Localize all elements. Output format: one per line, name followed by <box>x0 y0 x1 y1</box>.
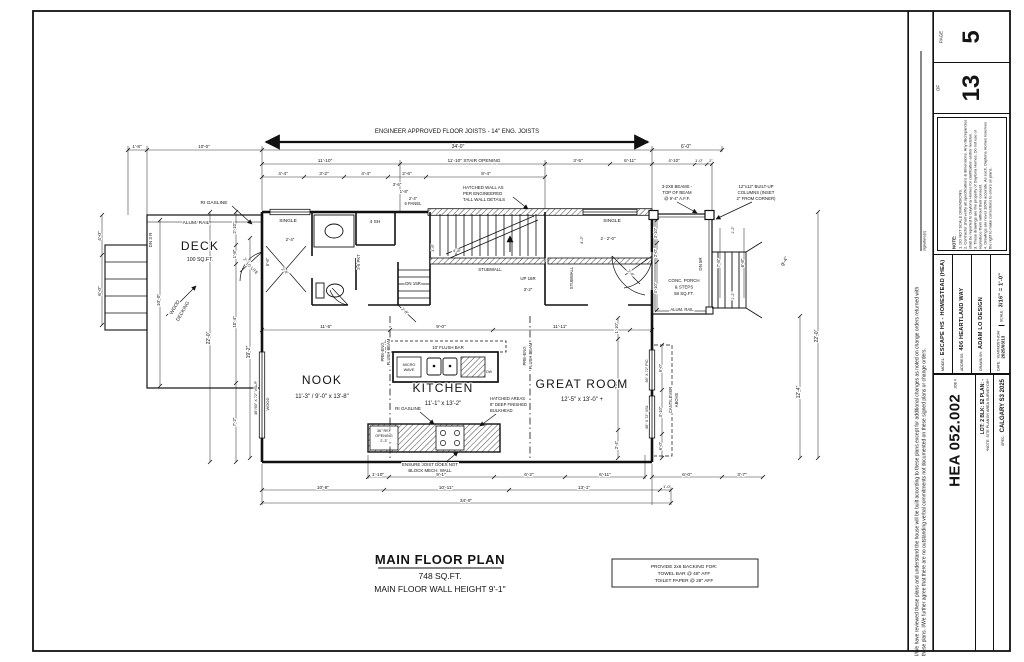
dim-label: 1'-0" <box>695 158 704 163</box>
disclaimer-strip: I/We have reviewed these plans and under… <box>908 11 933 651</box>
dim-label: 9'-4" <box>780 256 790 268</box>
ri-gasline-label: RI GASLINE <box>395 406 421 411</box>
date-label: DATE: <box>997 361 1001 371</box>
window-label: 36"/60" X 72" VSL/F <box>254 380 258 415</box>
dim-label: FLUSH BEAM <box>528 342 533 369</box>
dim-label: 11'-5" <box>320 324 332 330</box>
dim-label: 2'-0" <box>653 248 658 257</box>
leader-arrows <box>166 197 752 462</box>
bathroom-fixtures <box>314 215 354 298</box>
room-label-nook: NOOK <box>302 373 342 387</box>
dim-label: DW <box>486 370 493 374</box>
dim-label: 3'-6" <box>393 182 402 187</box>
dim-label: 11'-10" <box>318 158 333 164</box>
dim-label: 1'-8" <box>400 189 409 194</box>
job-info-group: HEA 052.002 JOB # LOT: 2 BLK: 52 PLAN: -… <box>934 375 1010 651</box>
stubwall <box>548 258 652 264</box>
dim-label: 9'-1" <box>436 472 446 478</box>
dim-label: 6'-0" <box>658 363 663 372</box>
dim-label: 6'-0" <box>97 286 103 296</box>
dim-label: TOP OF BEAM <box>662 190 692 195</box>
dim-label: 6'-11" <box>599 472 611 478</box>
notes-cell: NOTE: 1. DO NOT SCALE DIMENSIONS. 2. Con… <box>934 114 1010 255</box>
window-label: 36" X 72" VSL <box>645 405 649 429</box>
dim-label: 1/2 LITE <box>245 261 259 275</box>
note-item: 2. Contractor shall verify all specifica… <box>962 119 972 249</box>
window-label: SINGLE <box>603 218 621 224</box>
address-label: ADDRESS: <box>960 353 964 371</box>
dim-label: 3'-7" <box>737 472 747 478</box>
dim-label: PRE-ENG <box>380 342 385 361</box>
dim-label: 34'-0" <box>452 144 465 150</box>
beam-note: 3-2X8 BEAMS - <box>662 184 693 189</box>
title-block: PAGE 5 OF 13 NOTE: 1. DO NOT SCALE DIMEN… <box>933 11 1010 651</box>
dim-label: 7'-8" <box>716 258 721 267</box>
drawn-by-label: DRAWN BY: <box>979 351 983 371</box>
door-label: 2-6 PKT <box>356 254 361 270</box>
dim-label: 10'-8" <box>317 485 330 491</box>
dim-label: ALUM. RAIL <box>183 220 210 226</box>
signature-block: signature(s) <box>916 51 927 251</box>
dim-label: 10'-11" <box>439 485 454 491</box>
dim-label: 6'-0" <box>682 472 692 478</box>
dim-label: 4 SH <box>370 219 381 225</box>
joist-warning: ENSURE JOIST DOES NOT <box>402 462 458 467</box>
window-label: 36" X 72" PIC <box>645 359 649 382</box>
note-item: 3. These drawings are the property of Da… <box>972 119 982 249</box>
lot-line: LOT: 2 BLK: 52 PLAN: - <box>980 379 986 647</box>
dim-label: 58 SQ.FT. <box>674 291 694 296</box>
page-number-cell: PAGE 5 <box>934 11 1010 63</box>
plan-title: MAIN FLOOR PLAN <box>375 552 505 567</box>
dim-label: 1'-8" <box>232 249 237 258</box>
ri-gasline-label: RI GASLINE <box>201 200 228 206</box>
model-label: MODEL: <box>941 357 945 371</box>
dim-label: WAVE <box>404 368 415 372</box>
dim-label: 6 PANEL <box>405 201 423 206</box>
page-label: PAGE <box>939 30 944 42</box>
door-swings <box>240 246 652 322</box>
dim-label: & STEPS <box>675 285 694 290</box>
dim-label: 2'-4" <box>614 440 619 449</box>
backing-note: PROVIDE 2x6 BACKING FOR: <box>651 564 717 570</box>
dim-label: 2'-4" <box>626 268 636 278</box>
address-cell: ADDRESS: 406 HEARTLAND WAY <box>953 255 972 373</box>
dim-label: DN 5R <box>698 257 703 270</box>
dim-label: 6'-0" <box>681 144 691 150</box>
dim-label: ALUM. RAIL <box>670 307 694 312</box>
dim-label: 11'-1" x 13'-2" <box>425 401 461 407</box>
dim-label: TOILET PAPER @ 28" AFF <box>655 578 714 584</box>
disclaimer-text: I/We have reviewed these plans and under… <box>914 276 928 656</box>
plan-area: 748 SQ.FT. <box>419 571 462 581</box>
plan-wall-height: MAIN FLOOR WALL HEIGHT 9'-1" <box>374 584 505 594</box>
of-label: OF <box>936 85 941 91</box>
dim-label: CONC. PORCH <box>668 278 699 283</box>
dim-label: 4'-10" <box>668 158 680 163</box>
dim-label: 2'-6" <box>402 171 412 177</box>
dim-label: 10'-0" <box>198 144 210 149</box>
note-item: 4. Drawings are never 100% accurate. As … <box>982 119 992 249</box>
hatched-wall-note: HATCHED WALL AS <box>463 185 504 190</box>
dim-label: 8'-4" <box>481 171 491 177</box>
dim-label: 1'-10" <box>372 472 385 478</box>
dim-label: COLUMNS (INSET <box>738 190 775 195</box>
notes-box: NOTE: 1. DO NOT SCALE DIMENSIONS. 2. Con… <box>937 117 1007 251</box>
dim-label: 36" REF <box>377 429 392 433</box>
page-number: 5 <box>958 30 986 43</box>
dim-label: DN 3 R <box>148 232 153 248</box>
job-number-cell: HEA 052.002 JOB # <box>934 375 976 651</box>
lot-cell: LOT: 2 BLK: 52 PLAN: - *NOTE: SITE PLAN … <box>976 375 994 651</box>
project-info-group: MODEL: ESCAPE HS - HOMESTEAD (HEA) ADDRE… <box>934 255 1010 375</box>
window-label: SINGLE <box>279 218 297 224</box>
dim-label: 34'-0" <box>460 498 473 504</box>
dim-label: 2'-4" <box>286 237 295 242</box>
dim-label: 4'-2" <box>579 235 584 244</box>
dim-label: 5'-6" <box>265 257 270 266</box>
job-label: JOB # <box>953 379 957 389</box>
signature-line <box>916 51 922 251</box>
dim-label: 1'-10" <box>614 322 619 333</box>
dim-label: 13'-1" <box>578 485 591 491</box>
dim-label: 1'-6" <box>430 243 435 252</box>
dim-label: 3'-10" <box>653 227 658 238</box>
bulkhead-note: HATCHED AREAS <box>490 396 525 401</box>
dim-label: 100 SQ.FT. <box>187 257 213 263</box>
dim-label: 10'-0" <box>156 294 162 307</box>
date-value: 2025/03/13 <box>1001 330 1006 358</box>
drawn-by-value: ADAM LO DESIGN <box>978 297 984 349</box>
dim-label: @ 9'-4" A.F.F. <box>664 196 690 201</box>
room-label-kitchen: KITCHEN <box>412 381 473 395</box>
dim-label: PER ENGINEERED <box>463 191 502 196</box>
address-value: 406 HEARTLAND WAY <box>959 288 965 351</box>
dim-label: TALL WALL DETAILS <box>463 197 505 202</box>
dim-label: 2 - 2'-0" <box>600 236 616 241</box>
dim-label: 4'-4" <box>361 171 371 177</box>
porch-structure <box>649 211 762 319</box>
site-note: *NOTE: SITE PLAN BY AREA SURVEYOR* <box>986 379 990 647</box>
room-label-great-room: GREAT ROOM <box>536 377 629 391</box>
dim-label: 3'-10" <box>658 406 663 417</box>
dim-label: 2'-10" <box>232 222 237 234</box>
dim-label: 4'-8" <box>453 248 462 253</box>
dim-label: 4'-10" <box>653 282 658 293</box>
notes-heading: NOTE: <box>951 236 956 249</box>
dim-label: 9'-0" <box>436 324 446 330</box>
dim-label: 2'-4" <box>280 266 290 276</box>
dim-label: STUBWALL <box>569 266 574 289</box>
dim-label: 2'-3" <box>380 439 388 443</box>
dim-label: DN 15R <box>405 281 421 286</box>
dim-label: 2" FROM CORNER) <box>736 196 776 201</box>
drawing-sheet: ENGINEER APPROVED FLOOR JOISTS - 14" ENG… <box>0 0 1024 662</box>
dim-label: 2" <box>709 158 713 163</box>
date-scale-cell: DATE: YEAR/MONTH/DAY 2025/03/13 SCALE: 3… <box>991 255 1011 373</box>
dim-label: 3'-2" <box>319 171 329 177</box>
dim-label: OPENING <box>375 434 393 438</box>
dim-label: 11'-11" <box>553 324 567 330</box>
dim-label: 11'-10" STAIR OPENING <box>447 158 500 164</box>
drawn-by-cell: DRAWN BY: ADAM LO DESIGN <box>972 255 991 373</box>
dim-label: 11'-3" / 9'-0" x 13'-8" <box>295 394 348 400</box>
spec-value: CALGARY S3 2025 <box>1000 379 1006 432</box>
dim-label: TOWEL BAR @ 48" AFF <box>658 571 711 577</box>
joist-note: ENGINEER APPROVED FLOOR JOISTS - 14" ENG… <box>375 129 539 135</box>
dim-label: CANTILEVER <box>668 387 673 413</box>
dim-label: PRE-ENG <box>522 346 527 365</box>
stubwall <box>430 258 545 264</box>
dim-label: 4'-4" <box>278 171 288 177</box>
dim-label: 6'-11" <box>624 158 636 164</box>
signature-label: signature(s) <box>923 51 927 251</box>
scale-label: SCALE: <box>999 309 1003 322</box>
dim-label: BULKHEAD <box>490 408 513 413</box>
dim-label: FLUSH BEAM <box>386 338 391 365</box>
dim-label: 1'-2" <box>731 292 735 300</box>
dim-label: 12'-5" x 13'-0" + <box>561 397 604 403</box>
spec-label: SPEC: <box>1001 435 1005 446</box>
dim-label: 22'-0" <box>206 331 212 344</box>
total-pages-cell: OF 13 <box>934 63 1010 114</box>
dim-label: 6'-2" <box>524 472 534 478</box>
dim-label: 3'-5" <box>573 158 583 164</box>
dim-label: 6'-0" <box>658 441 663 450</box>
dim-label: 10' FLUSH BAR <box>432 345 464 350</box>
room-label-deck: DECK <box>181 239 219 253</box>
scale-value: 3/16" = 1'-0" <box>998 273 1004 308</box>
dim-label: WOOD <box>265 397 270 410</box>
dim-label: 1'-0" <box>663 484 672 489</box>
dim-label: 10'-4" <box>232 316 237 328</box>
dim-label: 2'-8" <box>400 306 410 316</box>
dim-label: 7'-2" <box>232 417 237 426</box>
dim-label: 3'-2" <box>524 287 533 292</box>
model-value: ESCAPE HS - HOMESTEAD (HEA) <box>940 260 946 356</box>
dim-label: 4'-0" <box>97 231 103 241</box>
column-note: 12"x12" BUILT-UP <box>739 184 774 189</box>
dim-label: 6'-8" <box>740 258 745 267</box>
dim-label: 1'-2" <box>731 226 735 234</box>
dim-label: UP 16R <box>520 276 535 281</box>
total-pages: 13 <box>958 75 986 102</box>
dim-label: 12'-4" <box>796 385 802 398</box>
model-cell: MODEL: ESCAPE HS - HOMESTEAD (HEA) <box>934 255 953 373</box>
dim-label: 1'-8" <box>132 144 142 149</box>
job-number: HEA 052.002 <box>946 394 963 487</box>
dim-label: 22'-0" <box>814 329 820 342</box>
spec-cell: SPEC: CALGARY S3 2025 <box>994 375 1011 651</box>
dim-label: STUBWALL <box>478 267 502 272</box>
sheet-border <box>33 11 1010 651</box>
floor-plan-drawing: ENGINEER APPROVED FLOOR JOISTS - 14" ENG… <box>0 0 1024 662</box>
dim-label: MICRO <box>403 363 416 367</box>
dim-label: ABOVE <box>674 393 679 408</box>
dim-label: 19'-2" <box>246 345 252 358</box>
dim-label: 8" DEEP FINISHED <box>490 402 527 407</box>
